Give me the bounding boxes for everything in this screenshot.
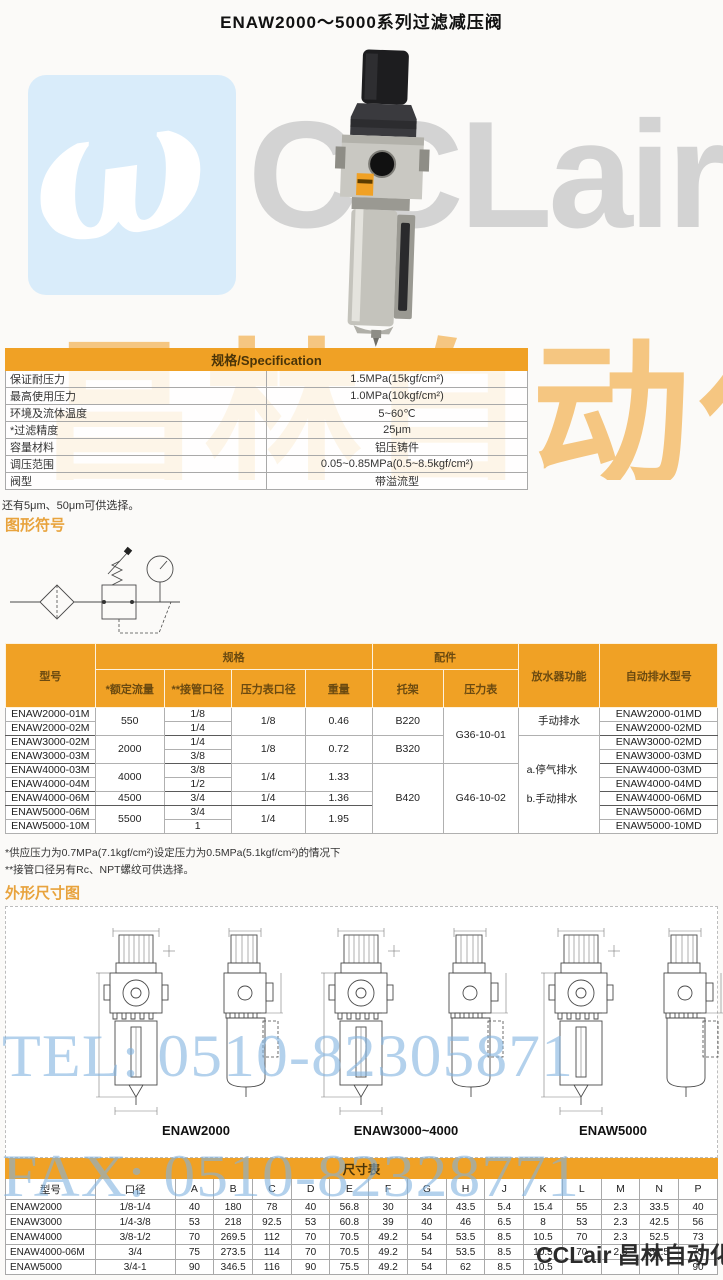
gauge-port-cell: 1/8 (231, 708, 305, 736)
size-cell: 53.5 (446, 1230, 485, 1245)
size-cell: 56 (679, 1215, 718, 1230)
spec-value: 0.05~0.85MPa(0.5~8.5kgf/cm²) (267, 456, 528, 473)
size-cell: 49.2 (369, 1230, 408, 1245)
gauge-port-cell: 1/4 (231, 792, 305, 806)
gauge-cell: G36-10-01 (443, 708, 518, 764)
size-cell: 346.5 (214, 1260, 253, 1275)
size-cell: 49.2 (369, 1245, 408, 1260)
port-cell: 3/4 (164, 806, 231, 820)
pneumatic-symbol-drawing (8, 540, 193, 640)
size-cell: 92.5 (253, 1215, 292, 1230)
size-cell: 54 (407, 1230, 446, 1245)
spec-table: 规格/Specification 保证耐压力1.5MPa(15kgf/cm²) … (5, 348, 528, 490)
size-cell: ENAW5000 (6, 1260, 96, 1275)
spec-label: 最高使用压力 (6, 388, 267, 405)
flow-cell: 2000 (95, 736, 164, 764)
size-cell: 53 (291, 1215, 330, 1230)
col-bracket: 托架 (372, 670, 443, 708)
col-model: 型号 (6, 644, 96, 708)
size-cell: 42.5 (640, 1215, 679, 1230)
fax-watermark: FAX: 0510-82328771 (2, 1142, 723, 1211)
size-cell: 46 (446, 1215, 485, 1230)
size-cell: 1/4-3/8 (95, 1215, 175, 1230)
spec-table-header: 规格/Specification (6, 349, 528, 371)
size-cell: 3/4 (95, 1245, 175, 1260)
spec-value: 铝压铸件 (267, 439, 528, 456)
size-cell: 40 (407, 1215, 446, 1230)
size-cell: 49.2 (369, 1260, 408, 1275)
auto-drain-cell: ENAW4000-06MD (600, 792, 718, 806)
size-cell: 54 (407, 1245, 446, 1260)
weight-cell: 1.36 (305, 792, 372, 806)
size-cell: 2.3 (601, 1215, 640, 1230)
auto-drain-cell: ENAW3000-02MD (600, 736, 718, 750)
size-cell: 114 (253, 1245, 292, 1260)
size-cell: ENAW3000 (6, 1215, 96, 1230)
size-cell: ENAW4000-06M (6, 1245, 96, 1260)
port-cell: 3/8 (164, 750, 231, 764)
size-cell: 3/4-1 (95, 1260, 175, 1275)
tel-watermark: TEL: 0510-82305871 (2, 1022, 723, 1091)
spec-label: 容量材料 (6, 439, 267, 456)
size-cell: 6.5 (485, 1215, 524, 1230)
size-cell: 90 (175, 1260, 214, 1275)
port-cell: 1 (164, 820, 231, 834)
spec-value: 1.5MPa(15kgf/cm²) (267, 371, 528, 388)
size-cell: 53 (175, 1215, 214, 1230)
size-cell: 70 (291, 1245, 330, 1260)
model-cell: ENAW4000-03M (6, 764, 96, 778)
size-cell: 70.5 (330, 1230, 369, 1245)
size-cell: 70.5 (330, 1245, 369, 1260)
port-cell: 1/4 (164, 736, 231, 750)
spec-label: *过滤精度 (6, 422, 267, 439)
group-spec: 规格 (95, 644, 372, 670)
size-cell: 269.5 (214, 1230, 253, 1245)
size-cell: 8.5 (485, 1260, 524, 1275)
port-cell: 1/8 (164, 708, 231, 722)
size-cell: 62 (446, 1260, 485, 1275)
model-table-note2: **接管口径另有Rc、NPT螺纹可供选择。 (5, 862, 194, 877)
weight-cell: 0.72 (305, 736, 372, 764)
size-cell: 70 (291, 1230, 330, 1245)
col-weight: 重量 (305, 670, 372, 708)
port-cell: 1/2 (164, 778, 231, 792)
auto-drain-cell: ENAW5000-10MD (600, 820, 718, 834)
size-cell: 8 (524, 1215, 563, 1230)
brand-logo-icon: ω (16, 49, 221, 289)
flow-cell: 550 (95, 708, 164, 736)
spec-label: 阀型 (6, 473, 267, 490)
auto-drain-cell: ENAW4000-03MD (600, 764, 718, 778)
size-cell: 39 (369, 1215, 408, 1230)
drawing-label: ENAW5000 (533, 1123, 693, 1138)
col-drain-function: 放水器功能 (518, 644, 600, 708)
flow-cell: 5500 (95, 806, 164, 834)
drawing-label: ENAW3000~4000 (326, 1123, 486, 1138)
size-cell: 8.5 (485, 1245, 524, 1260)
weight-cell: 0.46 (305, 708, 372, 736)
auto-drain-cell: ENAW3000-03MD (600, 750, 718, 764)
size-cell: ENAW4000 (6, 1230, 96, 1245)
size-cell: 112 (253, 1230, 292, 1245)
spec-value: 1.0MPa(10kgf/cm²) (267, 388, 528, 405)
spec-value: 25μm (267, 422, 528, 439)
catalog-page: ω CCLair 昌林自动化 ENAW2000～5000系列过滤减压阀 (0, 0, 723, 1280)
bracket-cell: B420 (372, 764, 443, 834)
size-cell: 53 (562, 1215, 601, 1230)
spec-note: 还有5μm、50μm可供选择。 (2, 497, 139, 513)
auto-drain-cell: ENAW4000-04MD (600, 778, 718, 792)
model-cell: ENAW5000-06M (6, 806, 96, 820)
size-cell: 8.5 (485, 1230, 524, 1245)
model-cell: ENAW5000-10M (6, 820, 96, 834)
gauge-cell: G46-10-02 (443, 764, 518, 834)
model-cell: ENAW2000-01M (6, 708, 96, 722)
gauge-port-cell: 1/4 (231, 764, 305, 792)
size-cell: 116 (253, 1260, 292, 1275)
col-auto-drain: 自动排水型号 (600, 644, 718, 708)
spec-value: 带溢流型 (267, 473, 528, 490)
spec-value: 5~60℃ (267, 405, 528, 422)
spec-label: 调压范围 (6, 456, 267, 473)
col-flow: *额定流量 (95, 670, 164, 708)
size-cell: 60.8 (330, 1215, 369, 1230)
symbol-section-title: 图形符号 (5, 514, 65, 535)
flow-cell: 4500 (95, 792, 164, 806)
model-table-note1: *供应压力为0.7MPa(7.1kgf/cm²)设定压力为0.5MPa(5.1k… (5, 845, 340, 860)
size-cell: 53.5 (446, 1245, 485, 1260)
weight-cell: 1.33 (305, 764, 372, 792)
bracket-cell: B220 (372, 708, 443, 736)
dimension-section-title: 外形尺寸图 (5, 882, 80, 903)
port-cell: 3/8 (164, 764, 231, 778)
size-cell: 90 (291, 1260, 330, 1275)
gauge-port-cell: 1/8 (231, 736, 305, 764)
model-cell: ENAW3000-03M (6, 750, 96, 764)
bottom-brand-watermark: CCLair 昌林自动化 (536, 1236, 723, 1270)
size-cell: 3/8-1/2 (95, 1230, 175, 1245)
model-table: 型号 规格 配件 放水器功能 自动排水型号 *额定流量 **接管口径 压力表口径… (5, 643, 718, 834)
auto-drain-cell: ENAW2000-01MD (600, 708, 718, 722)
size-cell: 75.5 (330, 1260, 369, 1275)
gauge-port-cell: 1/4 (231, 806, 305, 834)
spec-label: 环境及流体温度 (6, 405, 267, 422)
port-cell: 3/4 (164, 792, 231, 806)
port-cell: 1/4 (164, 722, 231, 736)
spec-label: 保证耐压力 (6, 371, 267, 388)
model-cell: ENAW2000-02M (6, 722, 96, 736)
size-cell: 54 (407, 1260, 446, 1275)
drain-option-a: a.停气排水 (527, 764, 599, 776)
size-cell: 218 (214, 1215, 253, 1230)
model-cell: ENAW3000-02M (6, 736, 96, 750)
drain-option-b: b.手动排水 (527, 793, 599, 805)
group-accessory: 配件 (372, 644, 518, 670)
auto-drain-cell: ENAW5000-06MD (600, 806, 718, 820)
drain-cell: a.停气排水 b.手动排水 (518, 736, 600, 834)
drain-cell: 手动排水 (518, 708, 600, 736)
model-cell: ENAW4000-04M (6, 778, 96, 792)
drawing-label: ENAW2000 (116, 1123, 276, 1138)
page-title: ENAW2000～5000系列过滤减压阀 (0, 8, 723, 33)
col-port: **接管口径 (164, 670, 231, 708)
size-cell: 273.5 (214, 1245, 253, 1260)
auto-drain-cell: ENAW2000-02MD (600, 722, 718, 736)
flow-cell: 4000 (95, 764, 164, 792)
weight-cell: 1.95 (305, 806, 372, 834)
size-cell: 70 (175, 1230, 214, 1245)
bracket-cell: B320 (372, 736, 443, 764)
col-gauge: 压力表 (443, 670, 518, 708)
product-photo (298, 46, 464, 348)
model-cell: ENAW4000-06M (6, 792, 96, 806)
size-cell: 75 (175, 1245, 214, 1260)
col-gauge-port: 压力表口径 (231, 670, 305, 708)
